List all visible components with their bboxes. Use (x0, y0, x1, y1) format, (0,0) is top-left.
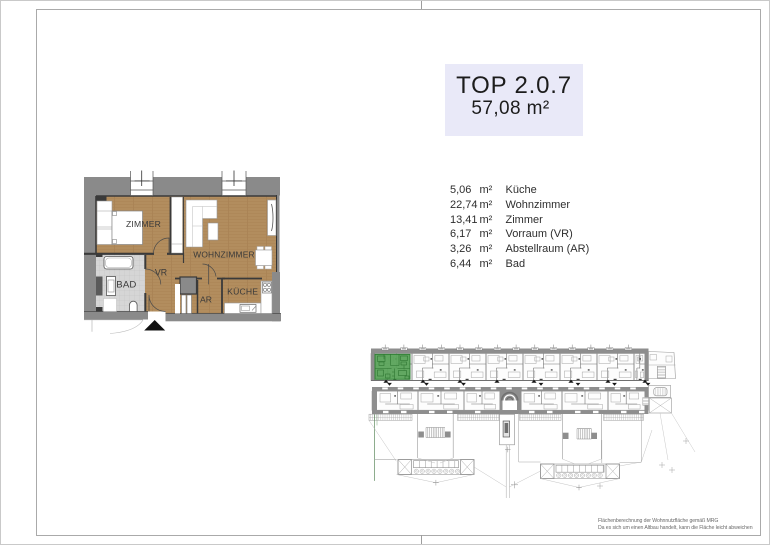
svg-text:WOHNZIMMER: WOHNZIMMER (193, 250, 255, 260)
svg-text:VR: VR (155, 268, 167, 278)
svg-text:KÜCHE: KÜCHE (227, 286, 258, 296)
svg-text:AR: AR (200, 295, 212, 305)
svg-text:ZIMMER: ZIMMER (126, 219, 161, 229)
svg-text:BAD: BAD (116, 279, 136, 290)
